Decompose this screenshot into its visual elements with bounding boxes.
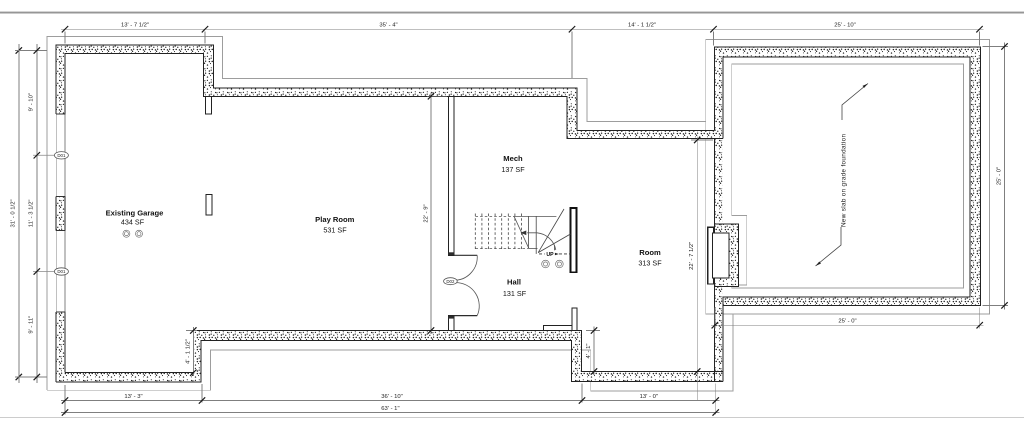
svg-text:Room: Room xyxy=(639,248,661,257)
svg-text:22' - 9": 22' - 9" xyxy=(423,204,429,222)
svg-text:UP: UP xyxy=(546,252,554,258)
svg-text:D01: D01 xyxy=(57,269,66,274)
svg-text:131 SF: 131 SF xyxy=(503,289,527,298)
svg-text:25' - 0": 25' - 0" xyxy=(838,319,856,325)
svg-text:434 SF: 434 SF xyxy=(121,218,145,227)
svg-text:Mech: Mech xyxy=(503,154,523,163)
svg-text:35' - 4": 35' - 4" xyxy=(379,23,397,29)
svg-text:25' - 10": 25' - 10" xyxy=(834,23,856,29)
svg-text:13' - 3": 13' - 3" xyxy=(124,394,142,400)
svg-text:4' - 1": 4' - 1" xyxy=(586,343,592,358)
svg-text:36' - 10": 36' - 10" xyxy=(381,394,403,400)
svg-text:137 SF: 137 SF xyxy=(501,165,525,174)
svg-text:Existing Garage: Existing Garage xyxy=(106,208,164,217)
svg-text:13' - 0": 13' - 0" xyxy=(640,394,658,400)
svg-text:313 SF: 313 SF xyxy=(638,259,662,268)
svg-text:4' - 1 1/2": 4' - 1 1/2" xyxy=(185,339,191,364)
svg-text:11' - 3 1/2": 11' - 3 1/2" xyxy=(29,200,35,228)
svg-text:31' - 0 1/2": 31' - 0 1/2" xyxy=(11,199,17,227)
svg-text:D02: D02 xyxy=(446,279,455,284)
svg-text:Hall: Hall xyxy=(507,277,521,286)
svg-text:Play Room: Play Room xyxy=(315,215,354,224)
svg-text:9' - 11": 9' - 11" xyxy=(29,316,35,334)
svg-text:14' - 1 1/2": 14' - 1 1/2" xyxy=(628,23,656,29)
svg-text:D01: D01 xyxy=(57,153,66,158)
svg-text:63' - 1": 63' - 1" xyxy=(381,406,399,412)
svg-text:9' - 10": 9' - 10" xyxy=(29,93,35,111)
svg-text:13' - 7 1/2": 13' - 7 1/2" xyxy=(121,23,149,29)
svg-text:22' - 7 1/2": 22' - 7 1/2" xyxy=(689,242,695,270)
svg-text:New slab on grade foundation: New slab on grade foundation xyxy=(841,134,848,227)
svg-text:531 SF: 531 SF xyxy=(323,225,347,234)
svg-text:25' - 0": 25' - 0" xyxy=(997,167,1003,185)
